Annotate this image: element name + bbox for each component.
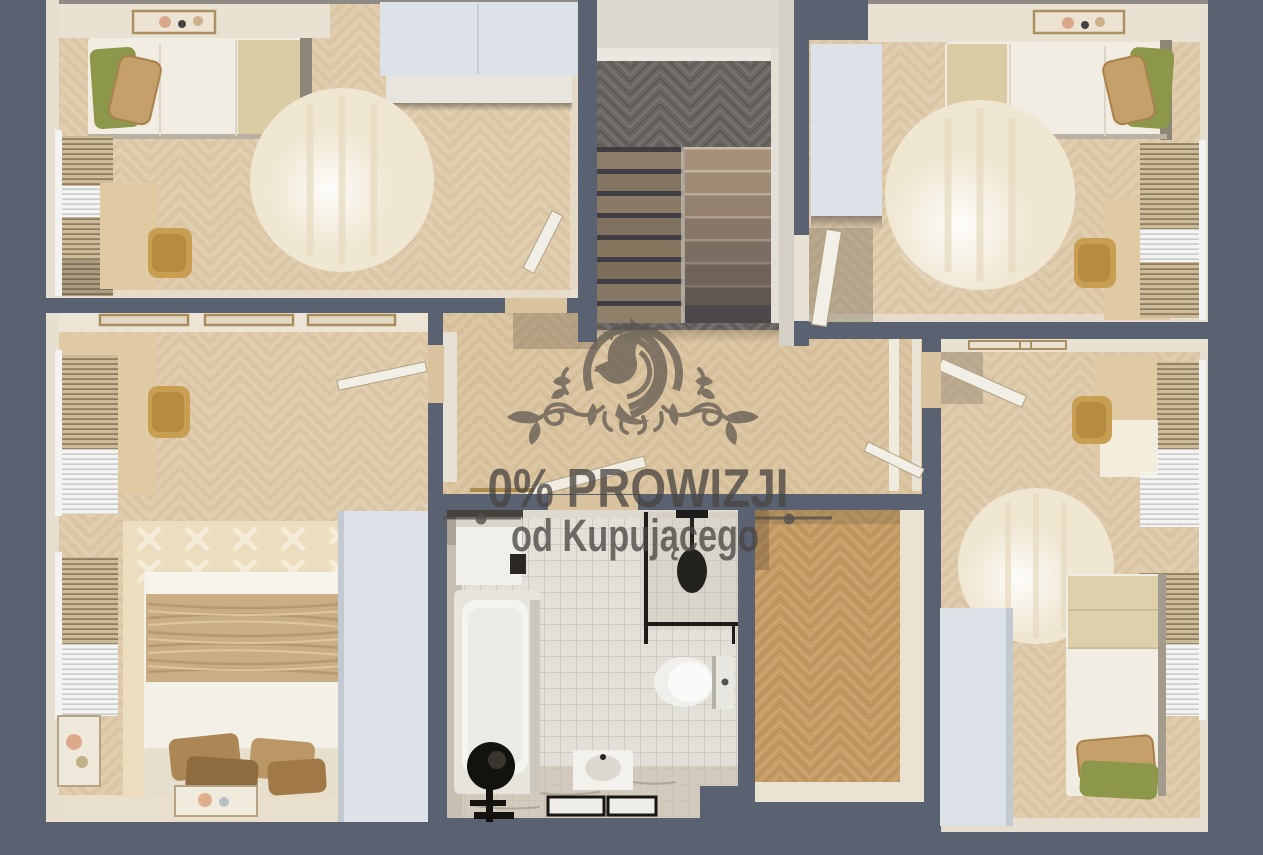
svg-text:od Kupującego: od Kupującego [511,510,759,561]
